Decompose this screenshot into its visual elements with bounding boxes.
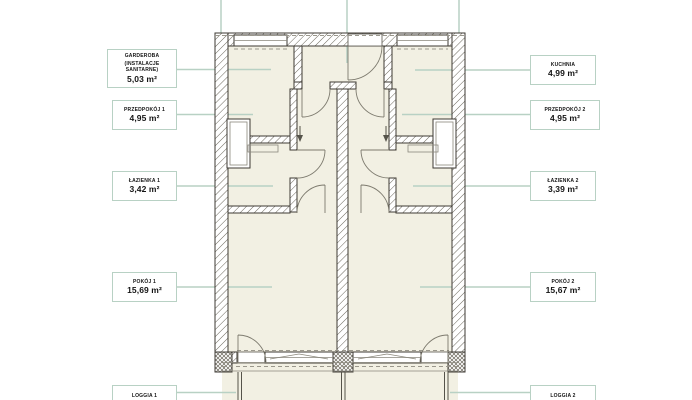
room-label-loggia-1: LOGGIA 1 [112,385,177,400]
room-area: 5,03 m² [127,75,157,84]
room-label-lazienka-2: ŁAZIENKA 2 3,39 m² [530,171,596,201]
room-name: (INSTALACJE SANITARNE) [110,61,174,74]
room-area: 3,39 m² [548,185,578,194]
room-label-lazienka-1: ŁAZIENKA 1 3,42 m² [112,171,177,201]
room-area: 4,95 m² [550,114,580,123]
floor-plan-page: GARDEROBA (INSTALACJE SANITARNE) 5,03 m²… [0,0,692,400]
room-label-kuchnia: KUCHNIA 4,99 m² [530,55,596,85]
room-label-przedpokoj-1: PRZEDPOKÓJ 1 4,95 m² [112,100,177,130]
room-label-pokoj-2: POKÓJ 2 15,67 m² [530,272,596,302]
room-name: GARDEROBA [125,53,160,60]
room-label-pokoj-1: POKÓJ 1 15,69 m² [112,272,177,302]
room-area: 3,42 m² [130,185,160,194]
room-area: 4,95 m² [130,114,160,123]
room-area: 15,69 m² [127,286,162,295]
room-area: 15,67 m² [546,286,581,295]
room-name: LOGGIA 1 [132,393,157,400]
room-name: LOGGIA 2 [550,393,575,400]
room-label-loggia-2: LOGGIA 2 [530,385,596,400]
room-label-garderoba: GARDEROBA (INSTALACJE SANITARNE) 5,03 m² [107,49,177,88]
room-label-przedpokoj-2: PRZEDPOKÓJ 2 4,95 m² [530,100,600,130]
room-area: 4,99 m² [548,69,578,78]
